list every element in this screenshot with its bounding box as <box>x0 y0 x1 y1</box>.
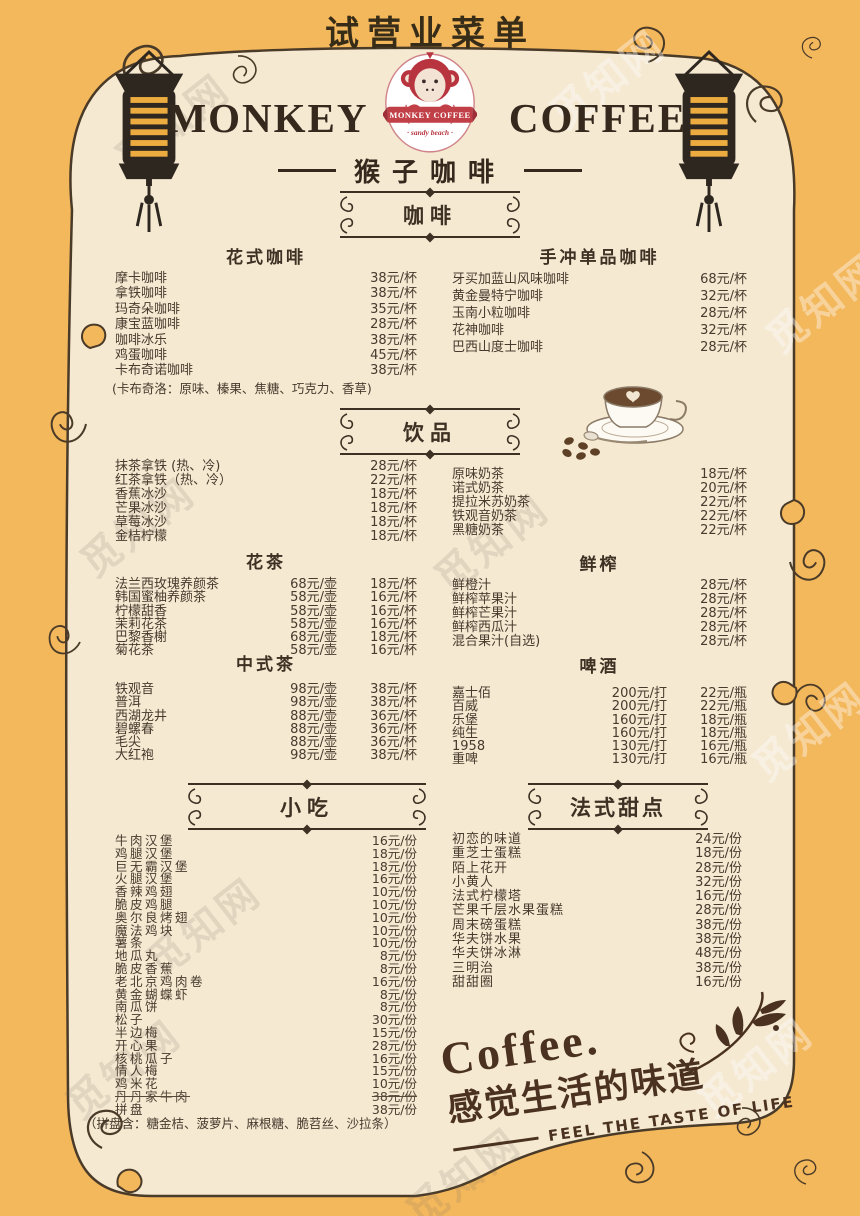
item-price: 28元/杯 <box>700 630 747 649</box>
menu-item: 松子30元/份 <box>115 1009 417 1022</box>
menu-item: 情人梅15元/份 <box>115 1060 417 1073</box>
menu-item: 魔法鸡块10元/份 <box>115 920 417 933</box>
menu-item: 地瓜丸8元/份 <box>115 945 417 958</box>
brand-name-right: COFFEE <box>478 94 718 142</box>
drinks-left-list: 抹茶拿铁 (热、冷)28元/杯红茶拿铁（热、冷）22元/杯香蕉冰沙18元/杯芒果… <box>115 455 417 539</box>
beer-list: 嘉士佰200元/打22元/瓶百威200元/打22元/瓶乐堡160元/打18元/瓶… <box>452 682 747 762</box>
section-header-desserts: 法式甜点 <box>528 783 708 830</box>
menu-item: 花神咖啡32元/杯 <box>452 319 747 336</box>
menu-item: 鸡蛋咖啡45元/杯 <box>115 344 417 359</box>
item-name: 卡布奇诺咖啡 <box>115 359 370 378</box>
menu-item: 百威200元/打22元/瓶 <box>452 695 747 708</box>
menu-item: 红茶拿铁（热、冷）22元/杯 <box>115 469 417 483</box>
menu-item: 南瓜饼8元/份 <box>115 996 417 1009</box>
menu-item: 草莓冰沙18元/杯 <box>115 511 417 525</box>
menu-item: 黄金曼特宁咖啡32元/杯 <box>452 285 747 302</box>
menu-item: 抹茶拿铁 (热、冷)28元/杯 <box>115 455 417 469</box>
svg-text:· sandy beach ·: · sandy beach · <box>407 128 453 137</box>
menu-item: 奥尔良烤翅10元/份 <box>115 907 417 920</box>
menu-item: 金桔柠檬18元/杯 <box>115 525 417 539</box>
svg-text:MONKEY COFFEE: MONKEY COFFEE <box>389 110 470 120</box>
section-header-drinks: 饮品 <box>340 408 520 455</box>
menu-item: 初恋的味道24元/份 <box>452 828 742 842</box>
menu-item: 丹丹家牛肉38元/份 <box>115 1086 417 1099</box>
menu-item: 巨无霸汉堡18元/份 <box>115 856 417 869</box>
menu-item: 鸡米花10元/份 <box>115 1073 417 1086</box>
menu-item: 咖啡冰乐38元/杯 <box>115 329 417 344</box>
desserts-list: 初恋的味道24元/份重芝士蛋糕18元/份陌上花开28元/份小黄人32元/份法式柠… <box>452 828 742 985</box>
item-name: 混合果汁(自选) <box>452 630 700 649</box>
menu-item: 鸡腿汉堡18元/份 <box>115 843 417 856</box>
menu-item: 鲜榨西瓜汁28元/杯 <box>452 616 747 630</box>
menu-item: 柠檬甜香58元/壶16元/杯 <box>115 600 417 613</box>
item-price: 130元/打 <box>572 748 667 767</box>
menu-item: 老北京鸡肉卷16元/份 <box>115 971 417 984</box>
snacks-note: （拼盘含：糖金桔、菠萝片、麻根糖、脆苕丝、沙拉条） <box>84 1113 397 1132</box>
menu-item: 大红袍98元/壶38元/杯 <box>115 744 417 757</box>
menu-item: 法式柠檬塔16元/份 <box>452 885 742 899</box>
lantern-icon <box>665 48 753 238</box>
menu-item: 诺式奶茶20元/杯 <box>452 477 747 491</box>
item-price: 18元/杯 <box>370 525 417 544</box>
brand-name-left: MONKEY <box>148 94 388 142</box>
item-name: 金桔柠檬 <box>115 525 370 544</box>
menu-item: 嘉士佰200元/打22元/瓶 <box>452 682 747 695</box>
menu-item: 香蕉冰沙18元/杯 <box>115 483 417 497</box>
subheader-chinese-tea: 中式茶 <box>115 650 417 675</box>
monkey-logo: MONKEY COFFEE · sandy beach · <box>383 50 477 156</box>
item-name: 甜甜圈 <box>452 971 695 990</box>
menu-item: 玛奇朵咖啡35元/杯 <box>115 298 417 313</box>
subheader-single-origin: 手冲单品咖啡 <box>452 243 747 268</box>
menu-item: 牙买加蓝山风味咖啡68元/杯 <box>452 268 747 285</box>
flower-tea-list: 法兰西玫瑰养颜茶68元/壶18元/杯韩国蜜柚养颜茶58元/壶16元/杯柠檬甜香5… <box>115 573 417 653</box>
menu-item: 碧螺春88元/壶36元/杯 <box>115 718 417 731</box>
menu-item: 陌上花开28元/份 <box>452 857 742 871</box>
item-name: 重啤 <box>452 748 572 767</box>
menu-item: 小黄人32元/份 <box>452 871 742 885</box>
item-price: 28元/杯 <box>700 336 747 355</box>
menu-item: 拼盘38元/份 <box>115 1099 417 1112</box>
item-price: 98元/壶 <box>242 744 337 763</box>
menu-item: 芒果冰沙18元/杯 <box>115 497 417 511</box>
section-header-snacks: 小吃 <box>188 783 426 830</box>
menu-item: 茉莉花茶58元/壶16元/杯 <box>115 613 417 626</box>
menu-item: 康宝蓝咖啡28元/杯 <box>115 313 417 328</box>
scroll-ornament-icon <box>502 195 524 235</box>
milk-tea-list: 原味奶茶18元/杯诺式奶茶20元/杯提拉米苏奶茶22元/杯铁观音奶茶22元/杯黑… <box>452 463 747 533</box>
menu-item: 香辣鸡翅10元/份 <box>115 881 417 894</box>
menu-item: 巴黎香榭68元/壶18元/杯 <box>115 626 417 639</box>
scroll-ornament-icon <box>690 787 712 827</box>
menu-item: 韩国蜜柚养颜茶58元/壶16元/杯 <box>115 586 417 599</box>
menu-item: 周末磅蛋糕38元/份 <box>452 914 742 928</box>
menu-item: 鲜橙汁28元/杯 <box>452 574 747 588</box>
scroll-ornament-icon <box>502 412 524 452</box>
scroll-ornament-icon <box>336 412 358 452</box>
subtitle-dash <box>524 169 582 172</box>
item-price: 22元/杯 <box>700 519 747 538</box>
fancy-coffee-list: 摩卡咖啡38元/杯拿铁咖啡38元/杯玛奇朵咖啡35元/杯康宝蓝咖啡28元/杯咖啡… <box>115 267 417 375</box>
brand-subtitle-row: 猴子咖啡 <box>0 152 860 189</box>
menu-item: 提拉米苏奶茶22元/杯 <box>452 491 747 505</box>
menu-item: 牛肉汉堡16元/份 <box>115 830 417 843</box>
lantern-icon <box>105 48 193 238</box>
chinese-tea-list: 铁观音98元/壶38元/杯普洱98元/壶38元/杯西湖龙井88元/壶36元/杯碧… <box>115 678 417 758</box>
menu-item: 重啤130元/打16元/瓶 <box>452 748 747 761</box>
menu-item: 薯条10元/份 <box>115 932 417 945</box>
menu-item: 甜甜圈16元/份 <box>452 971 742 985</box>
scroll-ornament-icon <box>336 195 358 235</box>
menu-item: 普洱98元/壶38元/杯 <box>115 691 417 704</box>
menu-item: 黄金蝴蝶虾8元/份 <box>115 984 417 997</box>
scroll-ornament-icon <box>524 787 546 827</box>
menu-item: 脆皮香蕉8元/份 <box>115 958 417 971</box>
item-name: 大红袍 <box>115 744 242 763</box>
menu-item: 华夫饼冰淋48元/份 <box>452 942 742 956</box>
menu-item: 脆皮鸡腿10元/份 <box>115 894 417 907</box>
menu-item: 铁观音98元/壶38元/杯 <box>115 678 417 691</box>
menu-item: 铁观音奶茶22元/杯 <box>452 505 747 519</box>
menu-item: 华夫饼水果38元/份 <box>452 928 742 942</box>
scroll-ornament-icon <box>408 787 430 827</box>
menu-item: 玉南小粒咖啡28元/杯 <box>452 302 747 319</box>
item-price: 38元/杯 <box>370 359 417 378</box>
snacks-list: 牛肉汉堡16元/份鸡腿汉堡18元/份巨无霸汉堡18元/份火腿汉堡16元/份香辣鸡… <box>115 830 417 1112</box>
item-price: 16元/瓶 <box>667 748 747 767</box>
subheader-flower-tea: 花茶 <box>115 548 417 573</box>
menu-item: 开心果28元/份 <box>115 1035 417 1048</box>
menu-item: 原味奶茶18元/杯 <box>452 463 747 477</box>
brand-subtitle: 猴子咖啡 <box>354 152 506 189</box>
menu-item: 火腿汉堡16元/份 <box>115 868 417 881</box>
item-name: 纯生 <box>452 722 572 741</box>
menu-item: 摩卡咖啡38元/杯 <box>115 267 417 282</box>
coffee-cup-illustration <box>555 357 705 462</box>
scroll-ornament-icon <box>184 787 206 827</box>
menu-item: 核桃瓜子16元/份 <box>115 1048 417 1061</box>
item-name: 巴西山度士咖啡 <box>452 336 700 355</box>
item-price: 38元/杯 <box>337 744 417 763</box>
menu-item: 乐堡160元/打18元/瓶 <box>452 709 747 722</box>
subtitle-dash <box>278 169 336 172</box>
menu-item: 芒果千层水果蛋糕28元/份 <box>452 899 742 913</box>
menu-item: 鲜榨芒果汁28元/杯 <box>452 602 747 616</box>
menu-item: 混合果汁(自选)28元/杯 <box>452 630 747 644</box>
menu-item: 毛尖88元/壶36元/杯 <box>115 731 417 744</box>
subheader-beer: 啤酒 <box>452 652 747 677</box>
juice-list: 鲜橙汁28元/杯鲜榨苹果汁28元/杯鲜榨芒果汁28元/杯鲜榨西瓜汁28元/杯混合… <box>452 574 747 644</box>
menu-item: 西湖龙井88元/壶36元/杯 <box>115 705 417 718</box>
fancy-coffee-note: (卡布奇洛：原味、榛果、焦糖、巧克力、香草) <box>112 378 372 397</box>
item-name: 黑糖奶茶 <box>452 519 700 538</box>
menu-item: 重芝士蛋糕18元/份 <box>452 842 742 856</box>
section-header-coffee: 咖啡 <box>340 191 520 238</box>
menu-item: 拿铁咖啡38元/杯 <box>115 282 417 297</box>
subheader-juice: 鲜榨 <box>452 550 747 575</box>
menu-item: 巴西山度士咖啡28元/杯 <box>452 336 747 353</box>
menu-poster: 觅知网 觅知网 觅知网 觅知网 觅知网 觅知网 觅知网 觅知网 觅知网 觅知网 … <box>0 0 860 1216</box>
menu-item: 三明治38元/份 <box>452 957 742 971</box>
single-origin-list: 牙买加蓝山风味咖啡68元/杯黄金曼特宁咖啡32元/杯玉南小粒咖啡28元/杯花神咖… <box>452 268 747 353</box>
menu-item: 卡布奇诺咖啡38元/杯 <box>115 359 417 374</box>
menu-item: 纯生160元/打18元/瓶 <box>452 722 747 735</box>
subheader-fancy-coffee: 花式咖啡 <box>115 243 417 268</box>
menu-item: 黑糖奶茶22元/杯 <box>452 519 747 533</box>
menu-item: 法兰西玫瑰养颜茶68元/壶18元/杯 <box>115 573 417 586</box>
menu-item: 鲜榨苹果汁28元/杯 <box>452 588 747 602</box>
menu-item: 半边梅15元/份 <box>115 1022 417 1035</box>
